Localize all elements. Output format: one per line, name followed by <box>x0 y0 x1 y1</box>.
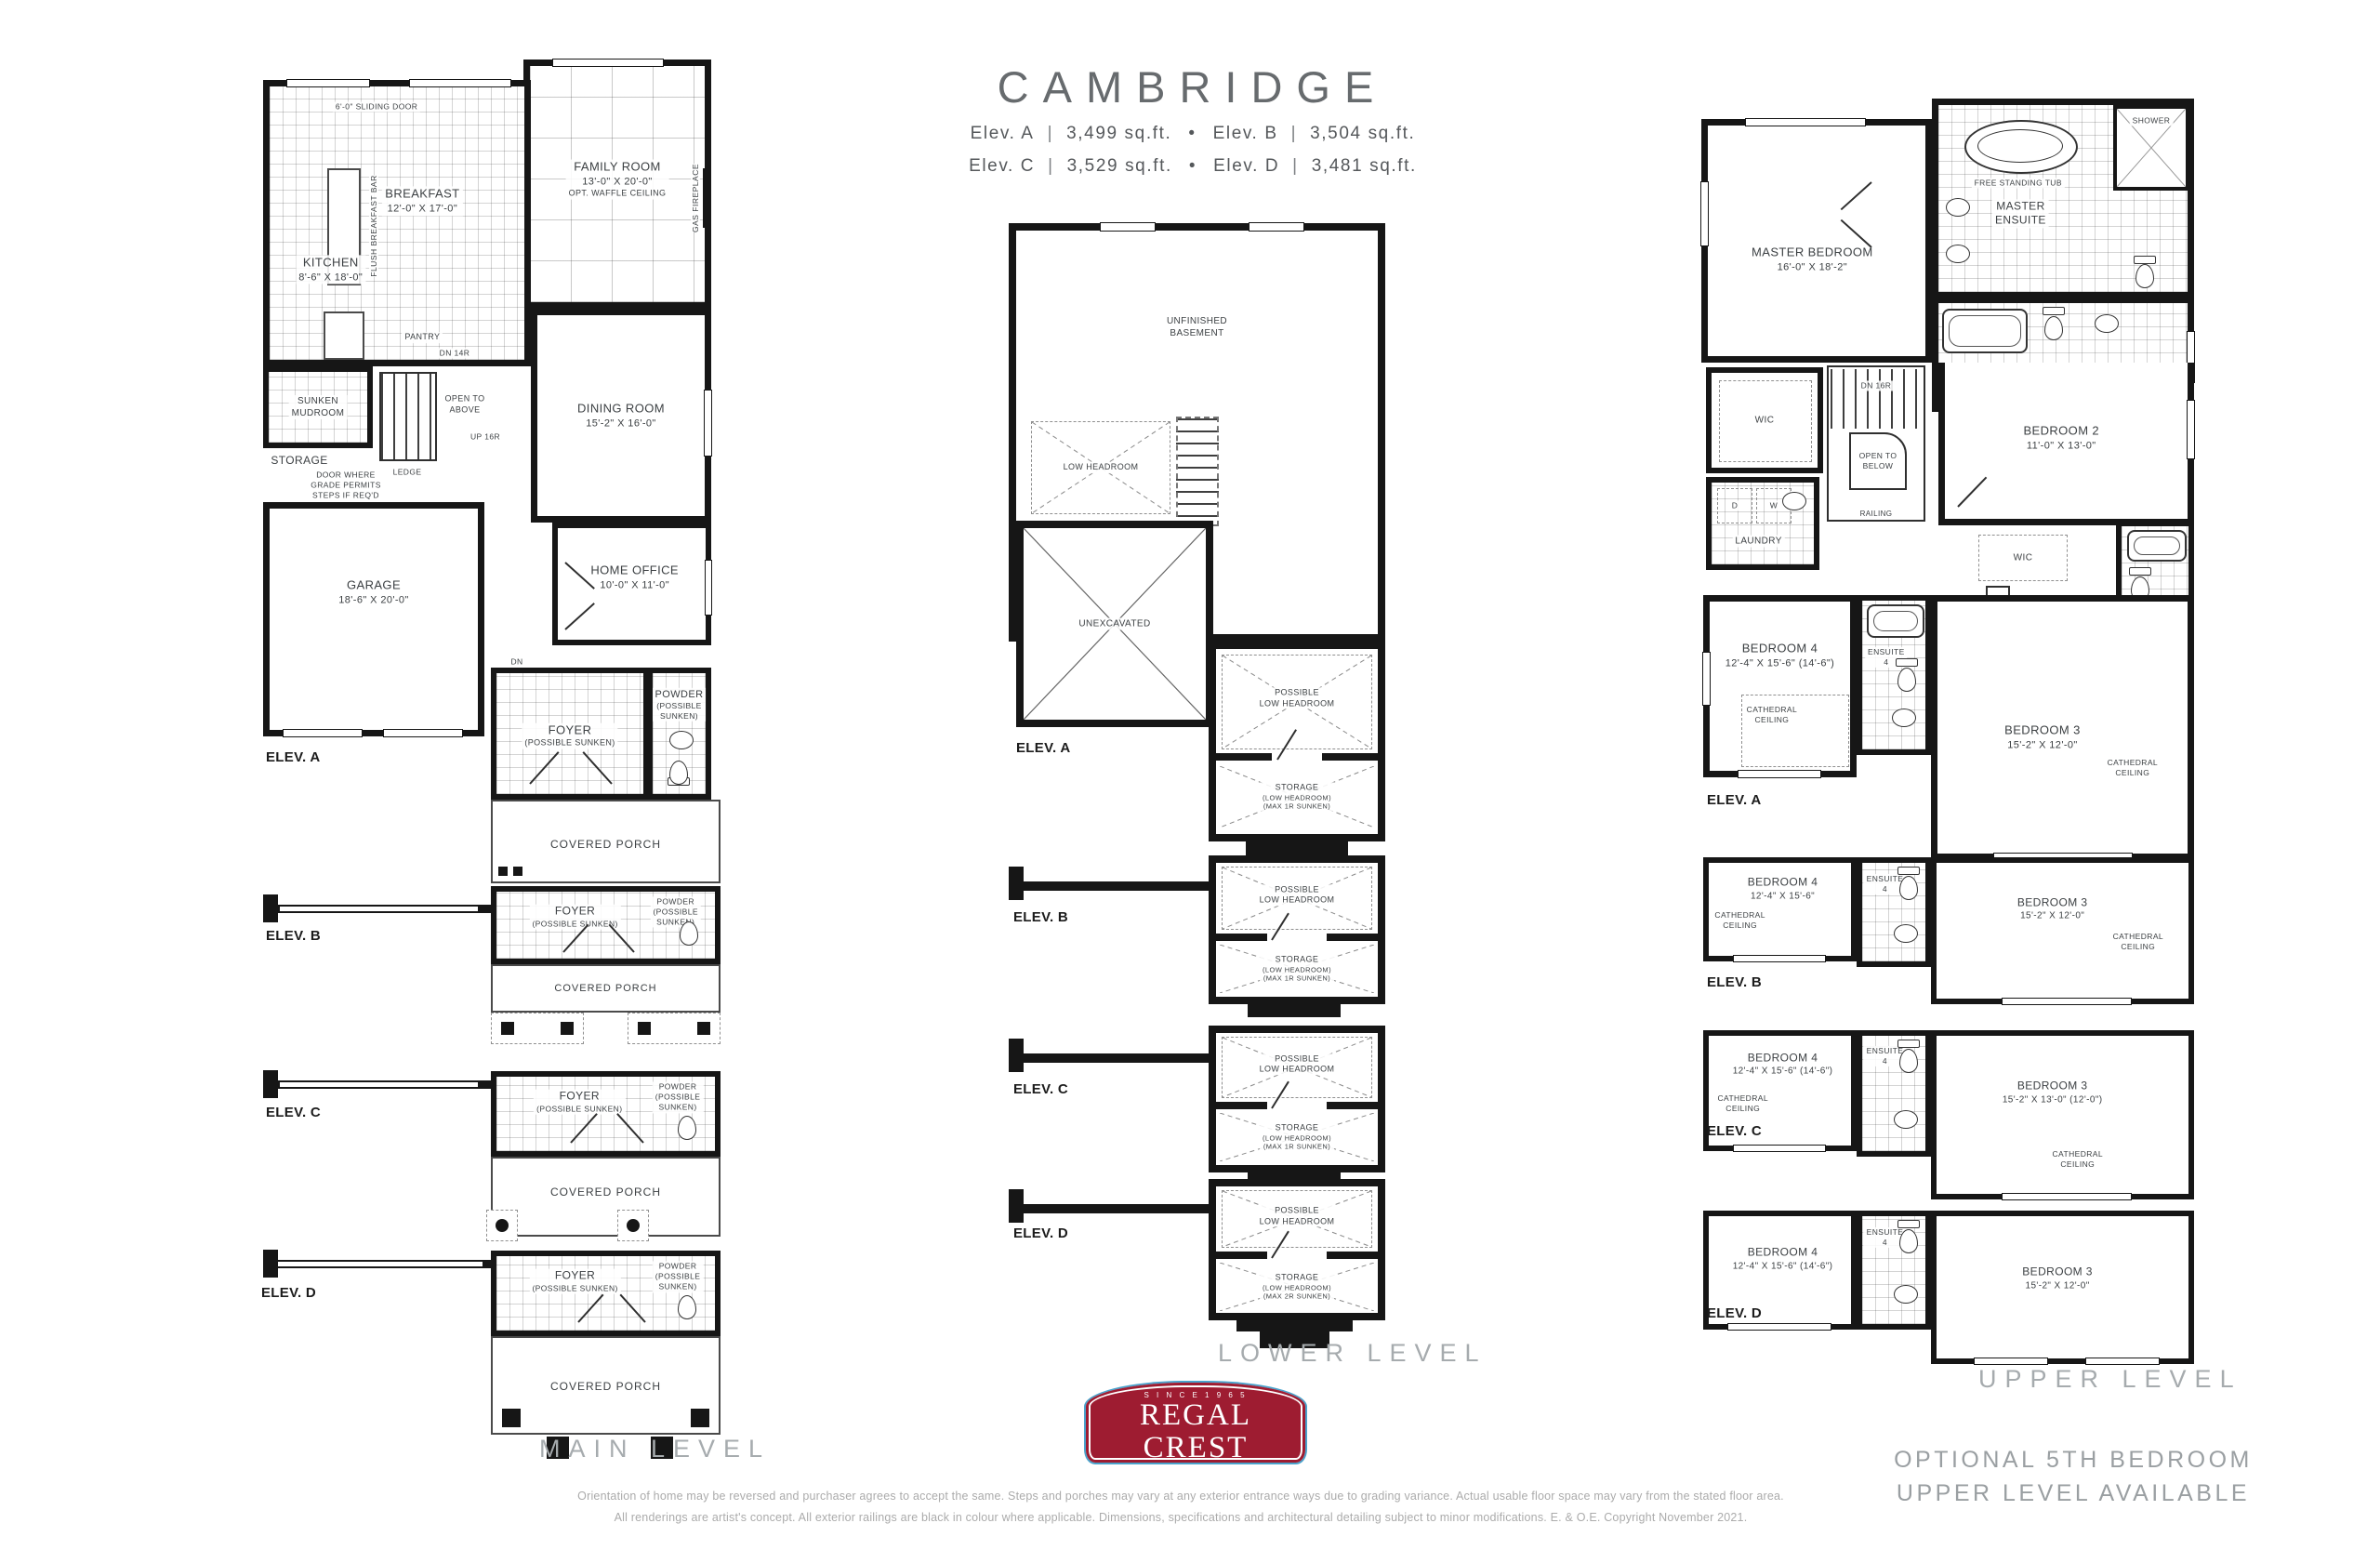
toilet <box>2129 567 2151 576</box>
fireplace <box>703 168 711 228</box>
bedroom-4-label: BEDROOM 4 12'-4" X 15'-6" (14'-6") <box>1730 1246 1836 1273</box>
tub-inner <box>1949 315 2021 347</box>
window <box>1745 118 1866 126</box>
bathtub <box>1867 604 1924 638</box>
separator: • <box>1188 124 1196 143</box>
bedroom-4: BEDROOM 4 12'-4" X 15'-6" (14'-6") CATHE… <box>1703 595 1857 777</box>
tub-inner <box>2134 536 2180 555</box>
toilet <box>1897 867 1920 875</box>
separator: | <box>1291 124 1298 143</box>
upper-elev-a-label: ELEV. A <box>1707 792 1762 808</box>
toilet <box>1897 1040 1920 1048</box>
powder-label: POWDER (POSSIBLE SUNKEN) <box>653 1262 703 1292</box>
foyer-label: FOYER (POSSIBLE SUNKEN) <box>534 1090 625 1115</box>
elev-b-label: Elev. B <box>1213 124 1278 143</box>
family-room: FAMILY ROOM 13'-0" X 20'-0" OPT. WAFFLE … <box>523 60 711 309</box>
storage-label: STORAGE (LOW HEADROOM) (MAX 1R SUNKEN) <box>1260 1122 1334 1151</box>
lower-rear-elev-c: POSSIBLE LOW HEADROOM STORAGE (LOW HEADR… <box>1209 1026 1385 1172</box>
window-band <box>279 1081 479 1088</box>
cathedral-ceiling-label: CATHEDRAL CEILING <box>1714 1093 1770 1114</box>
upper-level-title: UPPER LEVEL <box>1978 1365 2242 1394</box>
main-elev-b-label: ELEV. B <box>266 928 321 944</box>
elev-c-label: Elev. C <box>969 156 1035 176</box>
lower-level-title: LOWER LEVEL <box>1218 1339 1487 1368</box>
shower: SHOWER <box>2113 105 2189 191</box>
door-leaf <box>619 1294 645 1323</box>
ensuite-4-elev-c: ENSUITE 4 <box>1857 1030 1931 1157</box>
bedroom-4-label: BEDROOM 4 12'-4" X 15'-6" (14'-6") <box>1730 1051 1836 1078</box>
laundry-room: D W LAUNDRY <box>1706 477 1819 570</box>
wall-step <box>1248 1002 1341 1017</box>
upper-elev-d-label: ELEV. D <box>1707 1305 1762 1321</box>
window <box>2002 1193 2132 1200</box>
ensuite-4-elev-d: ENSUITE 4 <box>1857 1211 1931 1330</box>
window-band <box>271 1261 483 1267</box>
wic-master: WIC <box>1706 367 1823 473</box>
window <box>552 59 664 67</box>
toilet <box>1897 668 1916 692</box>
flush-breakfast-bar-label: FLUSH BREAKFAST BAR <box>369 175 378 276</box>
window <box>704 390 712 457</box>
family-room-label: FAMILY ROOM 13'-0" X 20'-0" OPT. WAFFLE … <box>566 159 669 199</box>
foyer-elev-b: FOYER (POSSIBLE SUNKEN) POWDER (POSSIBLE… <box>491 886 721 964</box>
covered-porch-label: COVERED PORCH <box>548 1185 664 1200</box>
window <box>705 560 712 616</box>
bedroom-3-elev-c: BEDROOM 3 15'-2" X 13'-0" (12'-0") CATHE… <box>1931 1030 2194 1199</box>
wall <box>263 1070 278 1098</box>
bedroom-3-label: BEDROOM 3 15'-2" X 13'-0" (12'-0") <box>2000 1080 2106 1106</box>
cathedral-ceiling-label: CATHEDRAL CEILING <box>2110 932 2166 952</box>
window <box>1727 1323 1831 1331</box>
disclaimer-line-2: All renderings are artist's concept. All… <box>446 1507 1915 1529</box>
powder-label: POWDER (POSSIBLE SUNKEN) <box>653 1082 703 1113</box>
elevation-sqft-line-2: Elev. C|3,529 sq.ft.•Elev. D|3,481 sq.ft… <box>867 156 1518 177</box>
sink <box>669 731 694 749</box>
window <box>1700 181 1709 246</box>
elev-a-label: Elev. A <box>971 124 1035 143</box>
wic-label: WIC <box>1752 415 1778 427</box>
front-door-leaf <box>529 751 559 785</box>
dryer-label: D <box>1729 500 1741 510</box>
garage-door <box>283 729 363 737</box>
wall <box>1216 753 1272 761</box>
lower-rear-elev-d: POSSIBLE LOW HEADROOM STORAGE (LOW HEADR… <box>1209 1179 1385 1320</box>
unexcavated-label: UNEXCAVATED <box>1076 618 1153 630</box>
sink <box>1946 198 1970 217</box>
main-level-title: MAIN LEVEL <box>539 1435 771 1464</box>
covered-porch-elev-b: COVERED PORCH <box>491 964 721 1013</box>
separator: | <box>1292 156 1299 176</box>
open-to-below-area: OPEN TO BELOW <box>1849 432 1907 490</box>
foyer: FOYER (POSSIBLE SUNKEN) <box>491 668 649 800</box>
bathtub <box>1942 309 2028 353</box>
basement-stairs <box>1176 417 1219 526</box>
dn-16r-label: DN 16R <box>1858 380 1895 391</box>
toilet <box>680 921 698 946</box>
door-leaf <box>564 603 595 630</box>
garage: GARAGE 18'-6" X 20'-0" <box>263 502 484 736</box>
elevation-sqft-line-1: Elev. A|3,499 sq.ft.•Elev. B|3,504 sq.ft… <box>867 124 1518 144</box>
window <box>1974 1358 2048 1365</box>
window <box>1702 652 1711 706</box>
porch-pillar <box>617 1210 649 1241</box>
foyer-label: FOYER (POSSIBLE SUNKEN) <box>529 905 620 930</box>
bedroom-3-elev-d: BEDROOM 3 15'-2" X 12'-0" <box>1931 1211 2194 1364</box>
window <box>2085 1358 2160 1365</box>
window <box>1249 222 1304 232</box>
porch-pillar-base <box>628 1013 721 1044</box>
open-to-above-label: OPEN TO ABOVE <box>443 393 488 415</box>
possible-low-headroom-area: POSSIBLE LOW HEADROOM <box>1222 1037 1372 1098</box>
elev-d-label: Elev. D <box>1213 156 1279 176</box>
main-elev-c-label: ELEV. C <box>266 1105 321 1120</box>
unexcavated-area: UNEXCAVATED <box>1016 521 1213 727</box>
mudroom-label: SUNKEN MUDROOM <box>289 395 348 419</box>
storage-label: STORAGE (LOW HEADROOM) (MAX 1R SUNKEN) <box>1260 954 1334 983</box>
shower-label: SHOWER <box>2130 116 2174 126</box>
disclaimer-line-1: Orientation of home may be reversed and … <box>446 1486 1915 1507</box>
stairwell: DN 16R OPEN TO BELOW RAILING <box>1827 365 1925 522</box>
separator: | <box>1048 124 1054 143</box>
possible-low-headroom-area: POSSIBLE LOW HEADROOM <box>1222 1190 1372 1248</box>
toilet <box>1899 1049 1918 1073</box>
free-standing-tub-label: FREE STANDING TUB <box>1972 179 2065 189</box>
wic-label: WIC <box>2011 552 2036 564</box>
possible-low-headroom-area: POSSIBLE LOW HEADROOM <box>1222 655 1372 749</box>
dn-label: DN <box>508 656 525 667</box>
garage-label: GARAGE 18'-6" X 20'-0" <box>336 578 412 607</box>
storage-area: STORAGE (LOW HEADROOM) (MAX 1R SUNKEN) <box>1220 945 1374 993</box>
up-16r-label: UP 16R <box>468 431 503 442</box>
door-leaf <box>1957 477 1987 508</box>
window <box>2187 400 2195 459</box>
regal-crest-homes-logo: S I N C E 1 9 6 5 REGAL CREST H O M E S <box>1086 1383 1305 1463</box>
toilet <box>2135 264 2154 288</box>
porch-pillar-base <box>491 1013 584 1044</box>
bathtub <box>2127 530 2187 562</box>
window <box>409 79 511 87</box>
foyer-label: FOYER (POSSIBLE SUNKEN) <box>529 1269 620 1294</box>
laundry-sink <box>1782 492 1806 510</box>
bedroom-3-label: BEDROOM 3 15'-2" X 12'-0" <box>2015 895 2091 922</box>
floorplan-sheet: CAMBRIDGE Elev. A|3,499 sq.ft.•Elev. B|3… <box>0 0 2380 1563</box>
dn-14r-label: DN 14R <box>437 348 473 358</box>
covered-porch-elev-d: COVERED PORCH <box>491 1336 721 1435</box>
ensuite-4-elev-b: ENSUITE 4 <box>1857 857 1931 967</box>
door-leaf <box>577 1294 603 1323</box>
cathedral-ceiling-label: CATHEDRAL CEILING <box>2050 1149 2106 1170</box>
window <box>1738 770 1821 778</box>
storage-area: STORAGE (LOW HEADROOM) (MAX 1R SUNKEN) <box>1220 766 1374 828</box>
low-headroom-area: LOW HEADROOM <box>1031 421 1170 514</box>
cathedral-ceiling-label: CATHEDRAL CEILING <box>1744 705 1800 725</box>
bedroom-2: BEDROOM 2 11'-0" X 13'-0" <box>1938 363 2194 525</box>
bedroom-3-label: BEDROOM 3 15'-2" X 12'-0" <box>2019 1265 2096 1292</box>
storage-label: STORAGE (LOW HEADROOM) (MAX 1R SUNKEN) <box>1260 782 1334 811</box>
porch-post <box>513 867 522 876</box>
porch-post <box>502 1409 521 1427</box>
possible-low-headroom-area: POSSIBLE LOW HEADROOM <box>1222 867 1372 930</box>
porch-post <box>561 1022 574 1035</box>
wall-step <box>1246 841 1348 856</box>
master-bedroom: MASTER BEDROOM 16'-0" X 18'-2" <box>1701 119 1932 363</box>
toilet <box>2043 307 2065 315</box>
covered-porch-label: COVERED PORCH <box>548 1380 664 1395</box>
stairs-down <box>1831 369 1924 429</box>
lower-elev-c-label: ELEV. C <box>1013 1081 1068 1097</box>
breakfast-label: BREAKFAST 12'-0" X 17'-0" <box>382 187 462 216</box>
wall <box>1009 1189 1024 1223</box>
door-leaf <box>570 1113 598 1144</box>
wic-bedroom-2: WIC <box>1978 535 2068 581</box>
wall <box>1216 1252 1267 1259</box>
sink <box>2095 314 2119 333</box>
laundry-label: LAUNDRY <box>1732 536 1784 548</box>
storage-label: STORAGE (LOW HEADROOM) (MAX 2R SUNKEN) <box>1260 1272 1334 1301</box>
unfinished-basement-label: UNFINISHED BASEMENT <box>1164 315 1230 339</box>
elev-b-sqft: 3,504 sq.ft. <box>1310 124 1415 143</box>
pantry-cabinet <box>324 311 364 360</box>
sink <box>1894 1110 1918 1129</box>
storage-label: STORAGE <box>268 454 330 469</box>
gas-fireplace-label: GAS FIREPLACE <box>691 164 700 232</box>
toilet <box>1897 1220 1920 1228</box>
sliding-door-label: 6'-0" SLIDING DOOR <box>333 101 420 112</box>
bedroom-3: BEDROOM 3 15'-2" X 12'-0" CATHEDRAL CEIL… <box>1931 595 2194 860</box>
porch-post <box>697 1022 710 1035</box>
porch-pillar <box>486 1210 518 1241</box>
lower-elev-a-label: ELEV. A <box>1016 740 1071 756</box>
home-office: HOME OFFICE 10'-0" X 11'-0" <box>552 523 711 645</box>
wall-step <box>1236 1318 1353 1331</box>
window <box>1733 1145 1826 1152</box>
possible-low-headroom-label: POSSIBLE LOW HEADROOM <box>1257 884 1338 906</box>
stairs-up <box>379 372 437 461</box>
wall <box>1327 1252 1378 1259</box>
porch-post <box>627 1219 640 1232</box>
sink <box>1892 709 1916 727</box>
elev-c-sqft: 3,529 sq.ft. <box>1067 156 1172 176</box>
wall <box>1216 934 1267 941</box>
low-headroom-label: LOW HEADROOM <box>1061 462 1142 473</box>
freestanding-tub <box>1964 120 2078 174</box>
storage-area: STORAGE (LOW HEADROOM) (MAX 1R SUNKEN) <box>1220 1113 1374 1161</box>
bedroom-2-label: BEDROOM 2 11'-0" X 13'-0" <box>2020 423 2102 452</box>
elev-a-sqft: 3,499 sq.ft. <box>1066 124 1171 143</box>
wall <box>1009 1204 1215 1213</box>
home-office-label: HOME OFFICE 10'-0" X 11'-0" <box>588 563 681 591</box>
toilet <box>2134 256 2156 264</box>
wall <box>1009 1039 1024 1072</box>
lower-elev-d-label: ELEV. D <box>1013 1225 1068 1241</box>
bedroom-4-label: BEDROOM 4 12'-4" X 15'-6" <box>1745 876 1821 903</box>
toilet <box>678 1295 696 1319</box>
master-ensuite-label: MASTER ENSUITE <box>1992 199 2049 228</box>
wall <box>1009 1053 1215 1063</box>
porch-post <box>501 1022 514 1035</box>
front-door-leaf <box>582 751 612 785</box>
toilet <box>669 761 688 785</box>
door-leaf <box>1841 219 1872 248</box>
foyer-elev-d: FOYER (POSSIBLE SUNKEN) POWDER (POSSIBLE… <box>491 1251 721 1336</box>
separator: • <box>1189 156 1197 176</box>
door-leaf <box>1841 181 1872 210</box>
open-to-below-label: OPEN TO BELOW <box>1857 451 1900 471</box>
logo-name-text: REGAL CREST <box>1086 1399 1305 1464</box>
cathedral-ceiling-area: CATHEDRAL CEILING <box>1741 695 1849 767</box>
foyer-label: FOYER (POSSIBLE SUNKEN) <box>522 722 617 749</box>
window <box>1733 955 1826 962</box>
main-elev-a-label: ELEV. A <box>266 749 321 765</box>
bedroom-4-elev-b: BEDROOM 4 12'-4" X 15'-6" CATHEDRAL CEIL… <box>1703 857 1857 961</box>
possible-low-headroom-label: POSSIBLE LOW HEADROOM <box>1257 687 1338 709</box>
disclaimer: Orientation of home may be reversed and … <box>446 1486 1915 1529</box>
plan-title: CAMBRIDGE <box>930 61 1455 113</box>
window <box>2002 998 2132 1005</box>
wall <box>1216 1102 1267 1109</box>
dryer: D <box>1717 488 1752 523</box>
porch-post <box>691 1409 709 1427</box>
toilet <box>1899 1229 1918 1253</box>
wall <box>1009 881 1215 891</box>
bedroom-3-label: BEDROOM 3 15'-2" X 12'-0" <box>2002 723 2083 752</box>
toilet <box>1896 658 1918 667</box>
lower-rear-area: POSSIBLE LOW HEADROOM STORAGE (LOW HEADR… <box>1209 642 1385 841</box>
covered-porch-label: COVERED PORCH <box>551 982 659 995</box>
main-elev-d-label: ELEV. D <box>261 1285 316 1301</box>
door-leaf <box>616 1113 644 1144</box>
wall <box>1327 934 1378 941</box>
lower-elev-b-label: ELEV. B <box>1013 909 1068 925</box>
covered-porch: COVERED PORCH <box>491 800 721 883</box>
bedroom-4-label: BEDROOM 4 12'-4" X 15'-6" (14'-6") <box>1723 642 1838 670</box>
sliding-door-window <box>286 79 370 87</box>
garage-door <box>383 729 463 737</box>
washer-label: W <box>1767 500 1780 510</box>
porch-post <box>498 867 508 876</box>
tub-inner <box>1873 611 1918 631</box>
wall <box>263 894 278 922</box>
foyer-elev-c: FOYER (POSSIBLE SUNKEN) POWDER (POSSIBLE… <box>491 1071 721 1157</box>
mudroom: SUNKEN MUDROOM <box>263 366 373 448</box>
possible-low-headroom-label: POSSIBLE LOW HEADROOM <box>1257 1053 1338 1075</box>
elev-d-sqft: 3,481 sq.ft. <box>1312 156 1417 176</box>
covered-porch-label: COVERED PORCH <box>548 839 664 854</box>
pantry-label: PANTRY <box>402 333 443 344</box>
porch-post <box>496 1219 509 1232</box>
wall <box>263 1250 278 1278</box>
ensuite-4: ENSUITE 4 <box>1857 595 1931 755</box>
dining-room: DINING ROOM 15'-2" X 16'-0" <box>531 309 711 523</box>
sink <box>1894 924 1918 943</box>
covered-porch-elev-c: COVERED PORCH <box>491 1157 721 1237</box>
upper-elev-b-label: ELEV. B <box>1707 974 1762 990</box>
bedroom-3-elev-b: BEDROOM 3 15'-2" X 12'-0" CATHEDRAL CEIL… <box>1931 857 2194 1004</box>
logo-homes-text: H O M E S <box>1086 1464 1305 1475</box>
kitchen-breakfast-area: 6'-0" SLIDING DOOR FLUSH BREAKFAST BAR B… <box>263 80 531 366</box>
lower-rear-elev-b: POSSIBLE LOW HEADROOM STORAGE (LOW HEADR… <box>1209 855 1385 1004</box>
powder-label: POWDER (POSSIBLE SUNKEN) <box>653 688 707 722</box>
toilet <box>678 1116 696 1140</box>
cathedral-ceiling-label: CATHEDRAL CEILING <box>2105 758 2161 778</box>
grade-door-note: DOOR WHERE GRADE PERMITS STEPS IF REQ'D <box>308 470 384 500</box>
separator: | <box>1048 156 1054 176</box>
powder-room: POWDER (POSSIBLE SUNKEN) <box>647 668 711 800</box>
dining-room-label: DINING ROOM 15'-2" X 16'-0" <box>575 401 668 430</box>
sink <box>1894 1285 1918 1304</box>
master-ensuite: FREE STANDING TUB MASTER ENSUITE SHOWER <box>1932 99 2194 298</box>
wall <box>1009 867 1024 900</box>
tub-inner <box>1977 129 2063 163</box>
porch-post <box>638 1022 651 1035</box>
ledge-label: LEDGE <box>390 467 425 477</box>
toilet <box>1899 876 1918 900</box>
wall <box>1327 1102 1378 1109</box>
door-leaf <box>608 924 634 953</box>
railing-label: RAILING <box>1858 510 1896 519</box>
kitchen-label: KITCHEN 8'-6" X 18'-0" <box>296 255 365 284</box>
sink <box>1946 245 1970 263</box>
window-band <box>279 906 479 912</box>
possible-low-headroom-label: POSSIBLE LOW HEADROOM <box>1257 1205 1338 1226</box>
wall <box>1322 753 1378 761</box>
upper-elev-c-label: ELEV. C <box>1707 1123 1762 1139</box>
cathedral-ceiling-label: CATHEDRAL CEILING <box>1712 910 1767 931</box>
toilet <box>2044 316 2063 340</box>
optional-5th-bedroom-note: OPTIONAL 5TH BEDROOM UPPER LEVEL AVAILAB… <box>1876 1443 2270 1511</box>
window <box>1100 222 1156 232</box>
storage-area: STORAGE (LOW HEADROOM) (MAX 2R SUNKEN) <box>1220 1263 1374 1311</box>
master-bedroom-label: MASTER BEDROOM 16'-0" X 18'-2" <box>1749 245 1876 273</box>
